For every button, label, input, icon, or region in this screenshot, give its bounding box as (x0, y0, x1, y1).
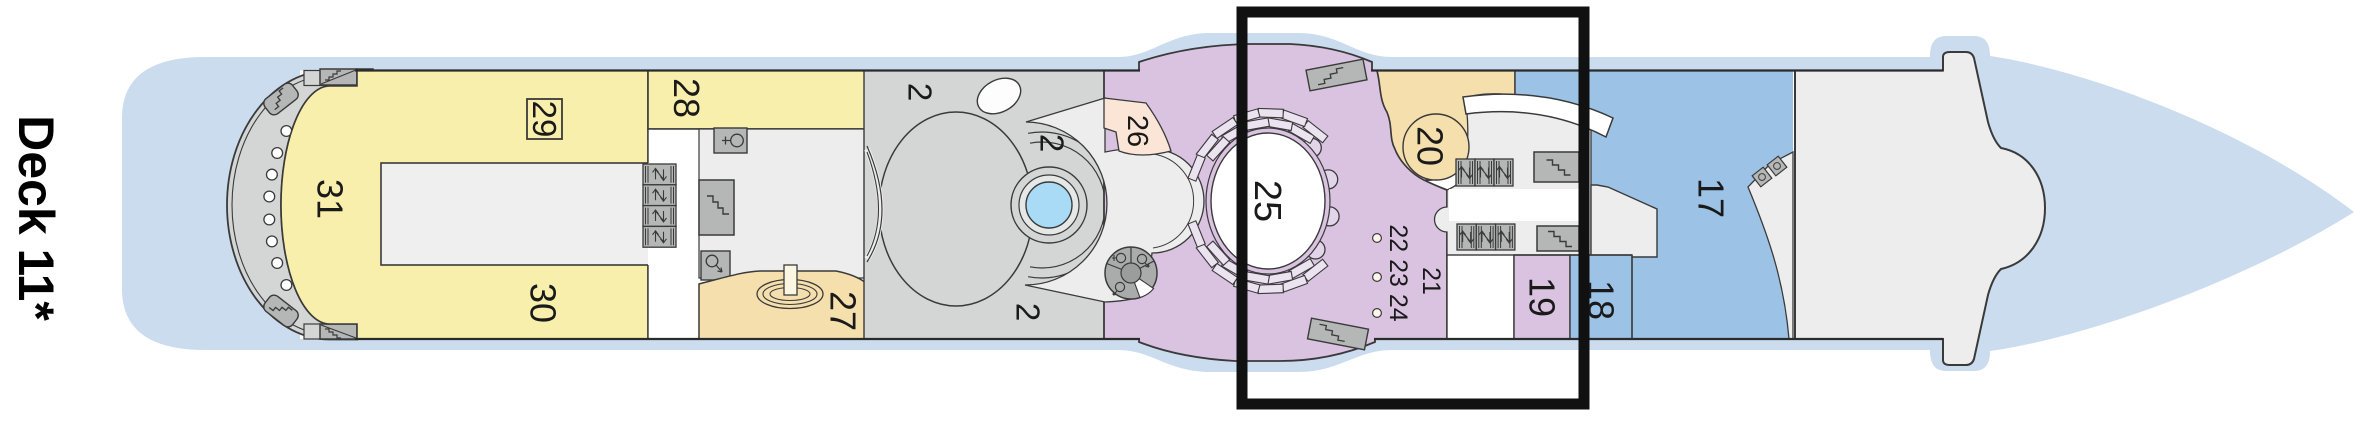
svg-text:17: 17 (1691, 178, 1732, 218)
svg-text:21: 21 (1417, 267, 1445, 295)
svg-text:25: 25 (1246, 180, 1288, 222)
svg-text:28: 28 (666, 78, 707, 118)
svg-text:26: 26 (1121, 115, 1153, 147)
svg-text:2: 2 (1010, 303, 1047, 321)
svg-text:22 23 24: 22 23 24 (1384, 224, 1412, 321)
svg-text:Deck 11*: Deck 11* (8, 115, 64, 321)
svg-text:19: 19 (1522, 277, 1563, 317)
svg-text:27: 27 (823, 291, 864, 331)
svg-text:2: 2 (1034, 134, 1071, 152)
svg-text:30: 30 (523, 283, 564, 323)
svg-text:20: 20 (1410, 126, 1451, 166)
svg-text:2: 2 (902, 83, 939, 101)
svg-text:29: 29 (526, 101, 563, 138)
svg-text:31: 31 (310, 179, 351, 219)
